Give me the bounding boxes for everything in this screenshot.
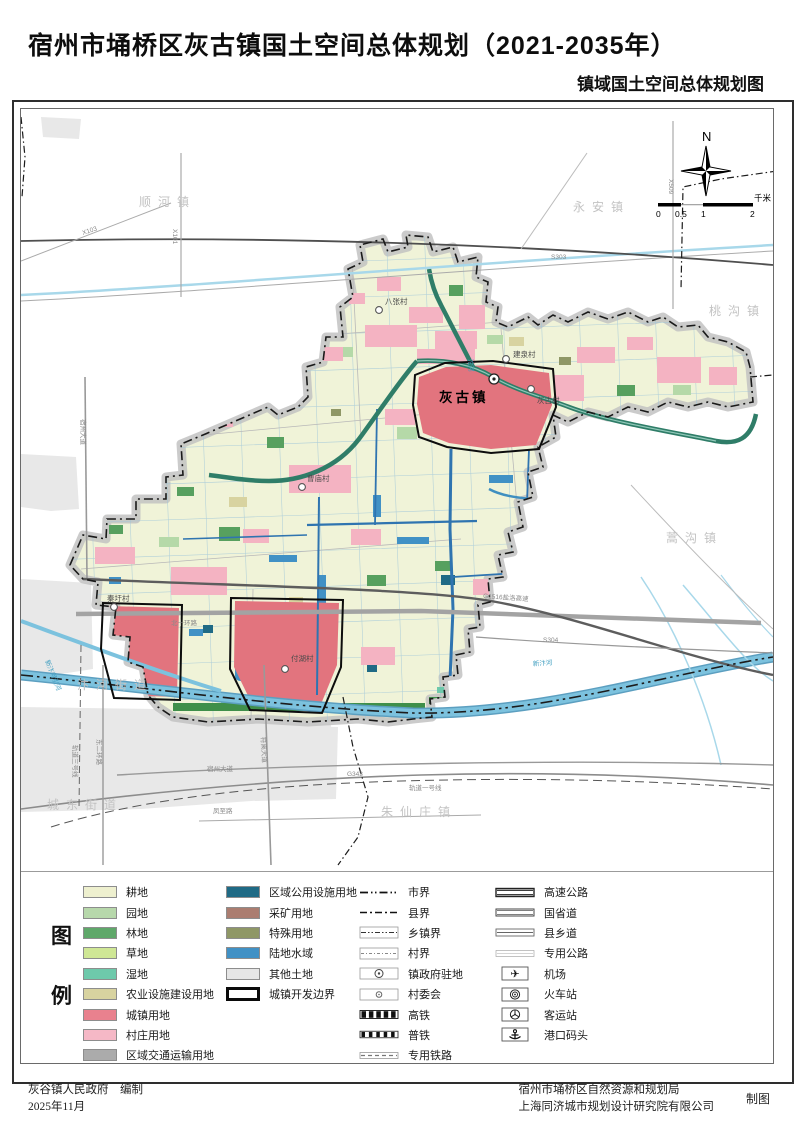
neighbor-label: 顺河镇 <box>139 195 196 209</box>
city-boundary-icon <box>359 885 399 900</box>
legend-item-label: 国省道 <box>544 905 577 921</box>
scale-tick: 1 <box>701 209 706 219</box>
legend-swatch <box>83 968 117 980</box>
road-label: S303 <box>551 254 567 261</box>
railway-station-icon <box>495 987 535 1002</box>
legend-column-boundaries: 市界县界乡镇界村界镇政府驻地村委会高铁普铁专用铁路 <box>359 882 463 1064</box>
map-inner-frame: 顺河镇 永安镇 桃沟镇 蒿沟镇 朱仙庄镇 汴河街道 城东街道 灰古镇 八张村 建… <box>20 108 774 1064</box>
neighbor-label: 桃沟镇 <box>709 303 766 318</box>
legend-item: 普铁 <box>359 1025 463 1045</box>
high-speed-rail-icon <box>359 1007 399 1022</box>
legend-item-label: 采矿用地 <box>269 905 313 921</box>
road-label: X103 <box>81 225 98 236</box>
legend-swatch <box>226 987 260 1001</box>
compass-north-label: N <box>702 129 711 144</box>
national-provincial-road-icon <box>495 905 535 920</box>
village-label: 八张村 <box>385 296 408 306</box>
legend-item: 陆地水域 <box>226 943 357 963</box>
village-label: 付湖村 <box>291 653 314 663</box>
legend-item: 城镇开发边界 <box>226 984 357 1004</box>
scale-tick: 0.5 <box>675 209 687 219</box>
legend-item-label: 村界 <box>408 945 430 961</box>
legend-item: 采矿用地 <box>226 902 357 922</box>
road-label: 宿州大道 <box>79 419 88 446</box>
scale-unit: 千米 <box>754 193 772 203</box>
legend-title-char: 图 <box>51 920 72 950</box>
legend-item-label: 村委会 <box>408 986 441 1002</box>
legend-item: 区域公用设施用地 <box>226 882 357 902</box>
town-government-seat-dot <box>492 377 495 380</box>
neighbor-label: 朱仙庄镇 <box>381 804 457 819</box>
legend-item-label: 区域公用设施用地 <box>269 884 357 900</box>
bus-station-icon <box>495 1007 535 1022</box>
legend-item-label: 港口码头 <box>544 1027 588 1043</box>
legend-column-landuse-1: 耕地园地林地草地湿地农业设施建设用地城镇用地村庄用地区域交通运输用地 <box>83 882 214 1064</box>
legend-item: 县乡道 <box>495 923 588 943</box>
road-label: X509 <box>667 179 674 195</box>
page-title: 宿州市埇桥区灰古镇国土空间总体规划（2021-2035年） <box>28 26 768 62</box>
planning-document-page: 宿州市埇桥区灰古镇国土空间总体规划（2021-2035年） 镇域国土空间总体规划… <box>0 0 794 1123</box>
legend-item: 城镇用地 <box>83 1004 214 1024</box>
footer-prepared-by: 灰谷镇人民政府 编制 <box>28 1082 143 1099</box>
dedicated-road-icon <box>495 946 535 961</box>
svg-text:✈: ✈ <box>510 969 519 981</box>
neighbor-label: 汴河街道 <box>77 677 153 692</box>
legend-swatch <box>83 947 117 959</box>
legend-item: 高速公路 <box>495 882 588 902</box>
scale-tick: 2 <box>750 209 755 219</box>
legend-item-label: 耕地 <box>126 884 148 900</box>
legend-swatch <box>226 968 260 980</box>
footer-drafting-credit: 制图 <box>746 1090 770 1107</box>
map-frame: 顺河镇 永安镇 桃沟镇 蒿沟镇 朱仙庄镇 汴河街道 城东街道 灰古镇 八张村 建… <box>12 100 794 1084</box>
legend-swatch <box>226 927 260 939</box>
planning-map: 顺河镇 永安镇 桃沟镇 蒿沟镇 朱仙庄镇 汴河街道 城东街道 灰古镇 八张村 建… <box>21 109 773 871</box>
dedicated-rail-icon <box>359 1048 399 1063</box>
legend-item-label: 农业设施建设用地 <box>126 986 214 1002</box>
neighbor-label: 城东街道 <box>47 798 123 812</box>
road-label: 东二环路 <box>95 739 104 766</box>
legend-item: 园地 <box>83 902 214 922</box>
legend-item: 村庄用地 <box>83 1025 214 1045</box>
legend-item-label: 高铁 <box>408 1007 430 1023</box>
legend-item-label: 县乡道 <box>544 925 577 941</box>
map-subtitle: 镇域国土空间总体规划图 <box>577 70 764 95</box>
legend-item-label: 园地 <box>126 905 148 921</box>
footer-date: 2025年11月 <box>28 1099 143 1116</box>
legend-item-label: 特殊用地 <box>269 925 313 941</box>
village-label: 建泉村 <box>513 349 536 359</box>
legend-swatch <box>83 1029 117 1041</box>
town-government-seat-icon <box>359 966 399 981</box>
legend-item: 县界 <box>359 902 463 922</box>
legend-item: 草地 <box>83 943 214 963</box>
neighbor-label: 永安镇 <box>573 199 630 214</box>
legend-item-label: 湿地 <box>126 966 148 982</box>
village-label: 灰古村 <box>537 395 560 405</box>
compass-rose-icon <box>681 146 731 196</box>
legend-item-label: 村庄用地 <box>126 1027 170 1043</box>
legend-item: 专用铁路 <box>359 1045 463 1064</box>
legend-item-label: 火车站 <box>544 986 577 1002</box>
airport-icon: ✈ <box>495 966 535 981</box>
legend-item: 其他土地 <box>226 964 357 984</box>
expressway-icon <box>495 885 535 900</box>
legend-item: 火车站 <box>495 984 588 1004</box>
legend-column-facilities: 高速公路国省道县乡道专用公路✈机场火车站客运站港口码头 <box>495 882 588 1045</box>
legend-swatch <box>83 927 117 939</box>
township-boundary-icon <box>359 925 399 940</box>
legend-item-label: 林地 <box>126 925 148 941</box>
legend-swatch <box>83 1009 117 1021</box>
legend-item-label: 城镇用地 <box>126 1007 170 1023</box>
scale-tick: 0 <box>656 209 661 219</box>
legend-item: 港口码头 <box>495 1025 588 1045</box>
legend-swatch <box>226 886 260 898</box>
town-label: 灰古镇 <box>439 389 489 405</box>
road-label: G343 <box>347 771 363 778</box>
legend-item-label: 镇政府驻地 <box>408 966 463 982</box>
village-label: 曹庙村 <box>307 473 330 483</box>
legend-item: 专用公路 <box>495 943 588 963</box>
legend-item-label: 普铁 <box>408 1027 430 1043</box>
legend-item-label: 城镇开发边界 <box>269 986 335 1002</box>
legend-item-label: 高速公路 <box>544 884 588 900</box>
legend-swatch <box>83 1049 117 1061</box>
legend-swatch <box>226 947 260 959</box>
legend-column-landuse-2: 区域公用设施用地采矿用地特殊用地陆地水域其他土地城镇开发边界 <box>226 882 357 1004</box>
legend-item: ✈机场 <box>495 964 588 984</box>
legend-item: 区域交通运输用地 <box>83 1045 214 1064</box>
village-label: 秦圩村 <box>107 593 130 603</box>
legend-item-label: 客运站 <box>544 1007 577 1023</box>
road-label: 轨道三号线 <box>71 745 80 778</box>
legend-item-label: 县界 <box>408 905 430 921</box>
legend-item-label: 乡镇界 <box>408 925 441 941</box>
legend: 图 例 耕地园地林地草地湿地农业设施建设用地城镇用地村庄用地区域交通运输用地 区… <box>21 871 773 1063</box>
legend-item-label: 其他土地 <box>269 966 313 982</box>
legend-item: 国省道 <box>495 902 588 922</box>
legend-item: 村界 <box>359 943 463 963</box>
road-label: 凤至路 <box>213 806 233 815</box>
port-wharf-icon <box>495 1027 535 1042</box>
legend-item: 高铁 <box>359 1004 463 1024</box>
road-label: S304 <box>543 637 559 644</box>
legend-item-label: 专用铁路 <box>408 1047 452 1063</box>
legend-item: 市界 <box>359 882 463 902</box>
legend-item-label: 市界 <box>408 884 430 900</box>
legend-item-label: 区域交通运输用地 <box>126 1047 214 1063</box>
road-label: 北十环路 <box>171 618 198 627</box>
legend-item: 客运站 <box>495 1004 588 1024</box>
legend-item: 林地 <box>83 923 214 943</box>
legend-item: 耕地 <box>83 882 214 902</box>
legend-swatch <box>83 886 117 898</box>
regular-rail-icon <box>359 1027 399 1042</box>
legend-item: 特殊用地 <box>226 923 357 943</box>
legend-item: 乡镇界 <box>359 923 463 943</box>
legend-item-label: 草地 <box>126 945 148 961</box>
legend-swatch <box>83 907 117 919</box>
county-boundary-icon <box>359 905 399 920</box>
legend-item-label: 专用公路 <box>544 945 588 961</box>
legend-item: 村委会 <box>359 984 463 1004</box>
legend-item: 湿地 <box>83 964 214 984</box>
road-label: X101 <box>171 229 178 245</box>
village-committee-icon <box>359 987 399 1002</box>
legend-title-char: 例 <box>51 980 72 1010</box>
legend-swatch <box>226 907 260 919</box>
footer-right: 宿州市埇桥区自然资源和规划局 上海同济城市规划设计研究院有限公司 <box>519 1082 715 1116</box>
legend-swatch <box>83 988 117 1000</box>
legend-item: 农业设施建设用地 <box>83 984 214 1004</box>
neighbor-label: 蒿沟镇 <box>666 531 723 545</box>
footer-org1: 宿州市埇桥区自然资源和规划局 <box>519 1082 715 1099</box>
road-label: 宿州大道 <box>207 764 234 773</box>
county-township-road-icon <box>495 925 535 940</box>
village-boundary-icon <box>359 946 399 961</box>
footer-org2: 上海同济城市规划设计研究院有限公司 <box>519 1099 715 1116</box>
legend-item-label: 陆地水域 <box>269 945 313 961</box>
river-label: 新汴河 <box>533 658 554 668</box>
footer-left: 灰谷镇人民政府 编制 2025年11月 <box>28 1082 143 1116</box>
legend-item: 镇政府驻地 <box>359 964 463 984</box>
road-label: 轨道一号线 <box>409 783 442 792</box>
legend-item-label: 机场 <box>544 966 566 982</box>
